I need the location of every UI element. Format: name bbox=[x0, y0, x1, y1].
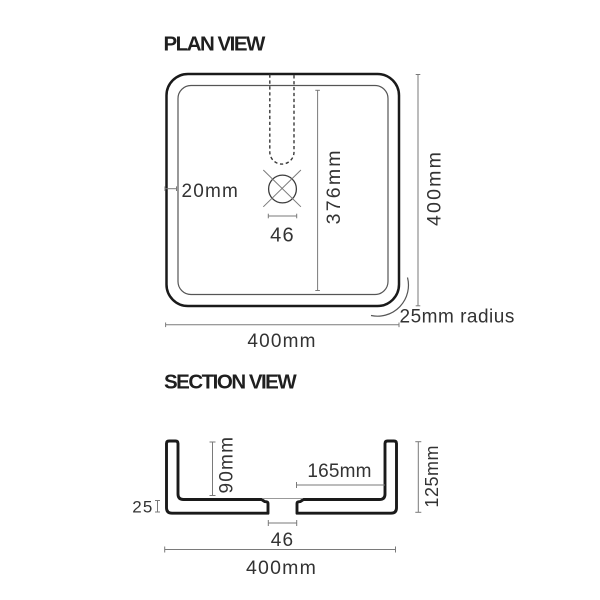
svg-text:90mm: 90mm bbox=[217, 436, 238, 494]
svg-text:46: 46 bbox=[270, 225, 295, 247]
svg-text:46: 46 bbox=[271, 530, 295, 551]
svg-text:125mm: 125mm bbox=[422, 445, 442, 508]
svg-text:165mm: 165mm bbox=[307, 461, 371, 482]
svg-text:PLAN VIEW: PLAN VIEW bbox=[164, 33, 267, 56]
svg-text:25mm radius: 25mm radius bbox=[400, 306, 515, 327]
svg-text:20mm: 20mm bbox=[182, 181, 240, 202]
svg-text:25: 25 bbox=[132, 498, 153, 517]
svg-text:400mm: 400mm bbox=[424, 150, 446, 226]
svg-text:SECTION VIEW: SECTION VIEW bbox=[164, 371, 297, 394]
svg-text:400mm: 400mm bbox=[246, 557, 317, 579]
svg-text:376mm: 376mm bbox=[323, 148, 345, 224]
svg-text:400mm: 400mm bbox=[247, 331, 316, 352]
